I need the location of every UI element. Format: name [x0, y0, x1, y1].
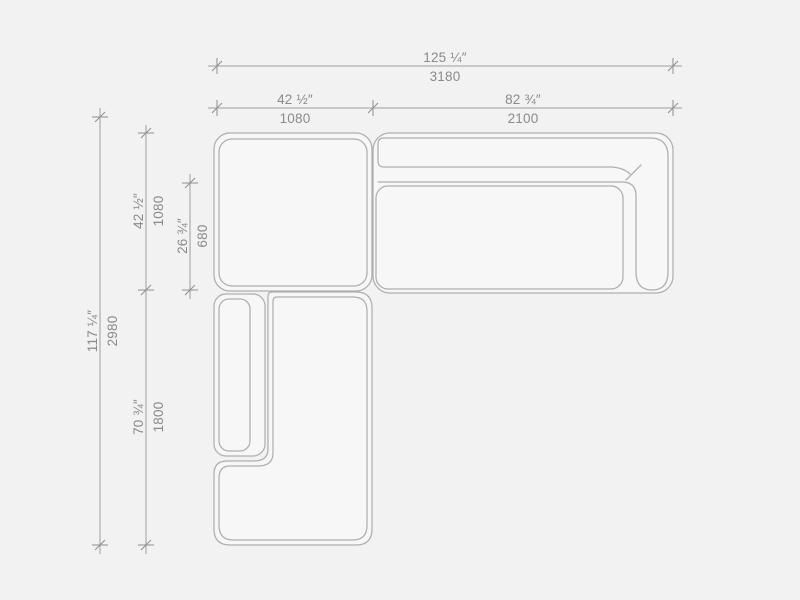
dim-upper-left-depth-mm-label: 1080 [151, 196, 166, 227]
dim-chaise-depth-mm-label: 1800 [151, 402, 166, 433]
dim-left-depths: 42 ½″ 1080 70 ¾″ 1800 [131, 125, 166, 554]
dim-total-depth-inches-label: 117 ¼″ [85, 310, 100, 353]
dim-total-depth-mm-label: 2980 [105, 316, 120, 347]
sofa-module-outline [373, 133, 673, 293]
dim-total-width-mm-label: 3180 [430, 69, 461, 84]
dim-right-section-mm-label: 2100 [508, 111, 539, 126]
technical-drawing-canvas: 125 ¼″ 3180 42 ½″ 1080 82 ¾″ 2100 [0, 0, 800, 600]
dim-chaise-depth-inches-label: 70 ¾″ [131, 399, 146, 435]
dim-seat-depth-inches-label: 26 ¾″ [175, 218, 190, 254]
chaise-module-armrest [214, 294, 265, 456]
dim-total-width: 125 ¼″ 3180 [208, 50, 682, 84]
dim-right-section-inches-label: 82 ¾″ [505, 92, 541, 107]
dimension-annotations: 125 ¼″ 3180 42 ½″ 1080 82 ¾″ 2100 [85, 50, 682, 554]
sofa-modules [214, 133, 673, 545]
sofa-plan-drawing: 125 ¼″ 3180 42 ½″ 1080 82 ¾″ 2100 [0, 0, 800, 600]
dim-left-section-inches-label: 42 ½″ [277, 92, 313, 107]
dim-total-width-inches-label: 125 ¼″ [423, 50, 467, 65]
dim-total-depth: 117 ¼″ 2980 [85, 108, 120, 554]
dim-left-section-mm-label: 1080 [280, 111, 311, 126]
dim-left-section-width: 42 ½″ 1080 [208, 92, 682, 126]
dim-right-section-width: 82 ¾″ 2100 [505, 92, 541, 126]
dim-upper-left-depth-inches-label: 42 ½″ [131, 193, 146, 229]
corner-module-outline [214, 133, 372, 291]
dim-seat-depth-mm-label: 680 [195, 224, 210, 247]
dim-seat-depth: 26 ¾″ 680 [175, 174, 210, 299]
